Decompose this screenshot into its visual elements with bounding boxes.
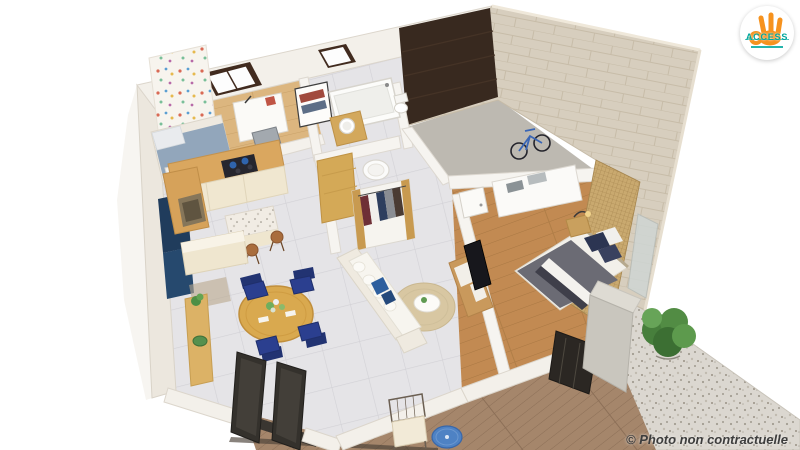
floorplan-photo: ACCESS © Photo non contractuelle (0, 0, 800, 450)
open-wardrobe (352, 179, 415, 250)
tub-faucet (385, 83, 389, 87)
bedroom-door (459, 187, 488, 218)
bamboo-chest (317, 153, 357, 223)
washbasin (330, 111, 367, 146)
green-platter (193, 336, 207, 346)
sliding-glass-door (272, 362, 306, 450)
kitchen-sink (178, 193, 206, 227)
ok-hand-icon (747, 10, 787, 50)
floorplan-3d-render (0, 0, 800, 450)
logo-underline (751, 46, 783, 48)
washing-machine (363, 160, 389, 180)
logo-brand-text: ACCESS (740, 32, 794, 42)
copyright-caption: © Photo non contractuelle (626, 432, 788, 447)
coffee-table (414, 294, 440, 312)
access-logo: ACCESS (740, 6, 794, 60)
table-plant (421, 297, 427, 303)
chair-cushion (392, 416, 427, 447)
blue-side-table (432, 426, 462, 448)
towel-shelf (295, 82, 332, 127)
dining-chair (290, 267, 315, 294)
